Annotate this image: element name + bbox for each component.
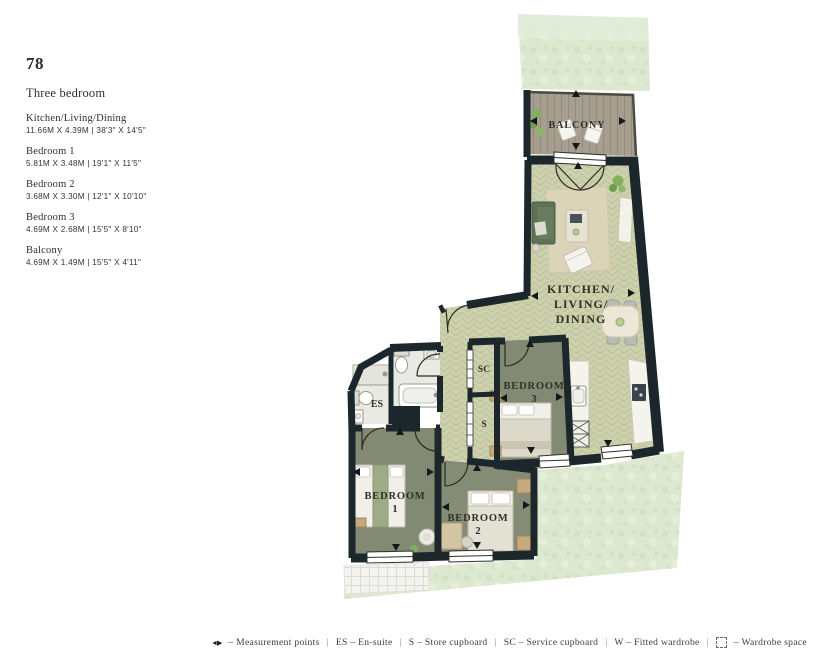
bedroom2-label: BEDROOM <box>447 513 508 524</box>
cupboard-door <box>467 402 473 446</box>
window <box>539 454 570 468</box>
service-cupboard-label: SC <box>478 365 490 375</box>
legend-item: – Measurement points <box>228 637 319 648</box>
legend-item: ES – En-suite <box>336 637 393 648</box>
legend-item: – Wardrobe space <box>734 637 807 648</box>
cupboard-door <box>467 350 473 388</box>
wardrobe-space-icon <box>716 637 727 648</box>
hob <box>632 384 646 401</box>
bedroom3-number: 3 <box>531 394 536 405</box>
sofa <box>532 202 555 244</box>
balcony-label: BALCONY <box>548 120 605 131</box>
legend-item: SC – Service cupboard <box>504 637 599 648</box>
plan-legend: ◄▶ – Measurement points | ES – En-suite … <box>205 637 813 648</box>
window <box>601 444 633 459</box>
coffee-table <box>566 210 588 242</box>
patio <box>344 562 429 594</box>
ensuite-label: ES <box>371 399 384 410</box>
window <box>367 551 413 563</box>
bedroom1-number: 1 <box>392 504 397 515</box>
stool <box>462 537 473 548</box>
sideboard <box>618 197 633 243</box>
kitchen-label-line1: KITCHEN/ <box>547 282 615 296</box>
legend-item: S – Store cupboard <box>409 637 488 648</box>
balcony-door-threshold <box>554 152 606 166</box>
measurement-points-icon: ◄▶ <box>211 639 221 647</box>
bedroom3-label: BEDROOM <box>503 381 564 392</box>
desk <box>441 523 462 549</box>
bedroom2-number: 2 <box>475 526 480 537</box>
kitchen-label-line3: DINING <box>556 312 607 326</box>
legend-item: W – Fitted wardrobe <box>614 637 699 648</box>
floor-lamp <box>532 244 540 252</box>
window <box>449 550 493 562</box>
kitchen-label-line2: LIVING/ <box>554 297 608 311</box>
bedroom1-label: BEDROOM <box>364 491 425 502</box>
floor-plan: BALCONY KITCHEN/ LIVING/ DINING BEDROOM … <box>0 0 813 661</box>
store-cupboard-label: S <box>481 420 486 430</box>
